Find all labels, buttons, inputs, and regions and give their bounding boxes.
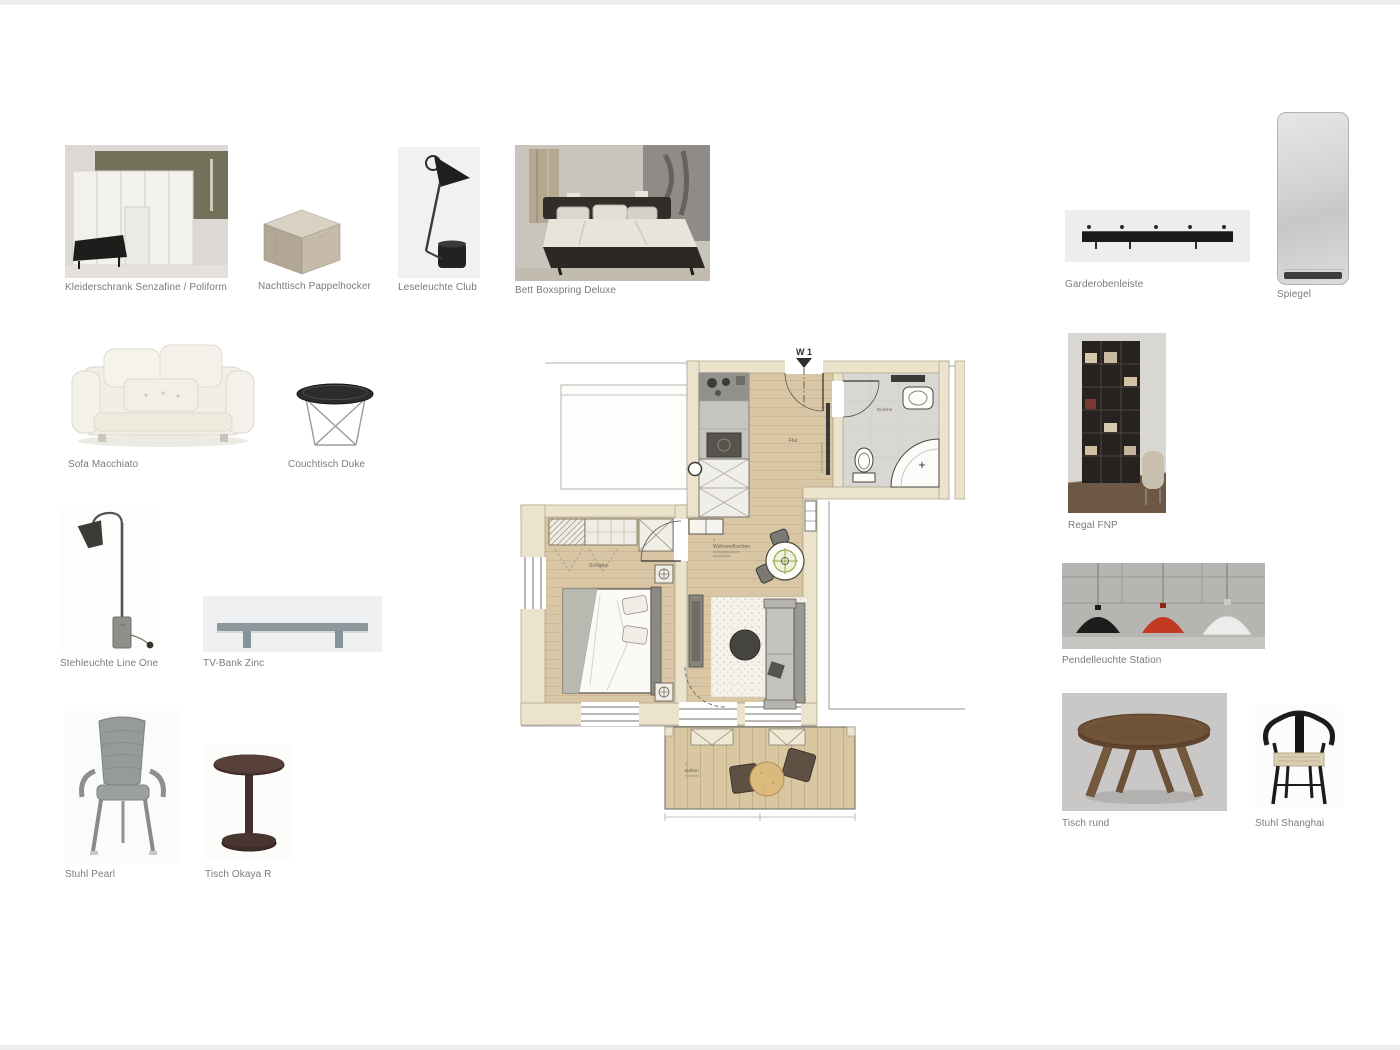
wall-left — [521, 505, 545, 725]
pendelleuchte-caption: Pendelleuchte Station — [1062, 655, 1265, 666]
stehleuchte-image — [60, 505, 160, 652]
balcony-door-opening — [679, 702, 737, 726]
coat-rail-label: Garderobenleiste — [819, 442, 824, 473]
mirror-band — [1283, 269, 1343, 270]
stuhl-shanghai-image — [1255, 705, 1343, 808]
spiegel-image — [1277, 112, 1349, 285]
wall-bedroom-top — [521, 505, 687, 517]
sofa-symbol — [764, 599, 805, 709]
neighbour-outline — [829, 501, 965, 709]
tvbank-leg — [335, 631, 343, 648]
product-sofa: Sofa Macchiato — [68, 337, 258, 470]
rail-knob — [1087, 225, 1091, 229]
window-left — [520, 557, 546, 609]
leseleuchte-caption: Leseleuchte Club — [398, 282, 480, 293]
product-kleiderschrank: Kleiderschrank Senzafine / Poliform — [65, 145, 228, 293]
planter — [769, 729, 805, 745]
column — [689, 463, 702, 476]
product-tvbank: TV-Bank Zinc — [203, 596, 382, 669]
floorplan: W 1 Flur Garderobenleiste — [505, 345, 965, 825]
bath-door-opening — [832, 381, 844, 417]
stuhl-shanghai-caption: Stuhl Shanghai — [1255, 818, 1343, 829]
toilet — [855, 448, 873, 472]
garderobenleiste-image — [1065, 210, 1250, 262]
kleiderschrank-image — [65, 145, 228, 278]
neighbour-terrace — [561, 385, 687, 489]
product-regal: Regal FNP — [1068, 333, 1166, 531]
bath-label: Dusche — [877, 407, 893, 412]
balcony-stub-left — [665, 727, 673, 736]
window-bottom-1 — [581, 702, 639, 726]
kleiderschrank-caption: Kleiderschrank Senzafine / Poliform — [65, 282, 228, 293]
bett-image — [515, 145, 710, 281]
coffee-table-symbol — [730, 630, 760, 660]
moodboard-page: Kleiderschrank Senzafine / Poliform Nach… — [0, 0, 1400, 1050]
rail-knob — [1120, 225, 1124, 229]
rail-hook — [1195, 242, 1197, 249]
nightstand — [655, 565, 673, 583]
living-label: Wohnen/Kochen — [713, 544, 750, 550]
tvbank-leg — [243, 631, 251, 648]
stehleuchte-caption: Stehleuchte Line One — [60, 658, 160, 669]
planter — [691, 729, 733, 745]
balcony-stub-right — [847, 727, 855, 736]
bedroom-door-opening — [674, 519, 688, 561]
regal-image — [1068, 333, 1166, 513]
garderobenleiste-caption: Garderobenleiste — [1065, 279, 1250, 290]
tisch-okaya-caption: Tisch Okaya R — [205, 869, 293, 880]
wall-neighbour-stub — [955, 361, 965, 499]
product-stuhl-shanghai: Stuhl Shanghai — [1255, 705, 1343, 829]
page-edge-top — [0, 0, 1400, 5]
wall-bath-right — [939, 361, 949, 499]
bed-headboard — [651, 587, 661, 695]
rail-knob — [1222, 225, 1226, 229]
product-bett: Bett Boxspring Deluxe — [515, 145, 710, 296]
tvbank-caption: TV-Bank Zinc — [203, 658, 382, 669]
sink — [903, 387, 933, 409]
bedroom-label: Schlafen — [589, 563, 609, 569]
nachttisch-caption: Nachttisch Pappelhocker — [258, 281, 371, 292]
tisch-rund-caption: Tisch rund — [1062, 818, 1227, 829]
rail-bar — [1082, 231, 1233, 242]
product-spiegel: Spiegel — [1277, 112, 1349, 300]
coat-rail-symbol — [826, 403, 830, 475]
product-couchtisch: Couchtisch Duke — [288, 373, 383, 470]
tvbank-image — [203, 596, 382, 652]
wall-bath-bottom — [803, 487, 949, 499]
pendelleuchte-image — [1062, 563, 1265, 649]
sofa-caption: Sofa Macchiato — [68, 459, 258, 470]
radiator — [805, 501, 816, 531]
stuhl-pearl-image — [65, 711, 180, 863]
stuhl-pearl-caption: Stuhl Pearl — [65, 869, 180, 880]
tisch-okaya-image — [205, 745, 293, 860]
tvbank-top — [217, 623, 368, 631]
hall-label: Flur — [789, 438, 798, 444]
bett-caption: Bett Boxspring Deluxe — [515, 285, 710, 296]
balcony-label: Balkon — [685, 768, 699, 773]
couchtisch-image — [288, 373, 383, 450]
bath-shelf — [891, 375, 925, 382]
nachttisch-image — [258, 208, 346, 277]
nightstand — [655, 683, 673, 701]
sofa-image — [68, 337, 258, 450]
product-tisch-okaya: Tisch Okaya R — [205, 745, 293, 880]
leseleuchte-image — [398, 147, 480, 278]
rail-knob — [1154, 225, 1158, 229]
tisch-rund-image — [1062, 693, 1227, 811]
rail-knob — [1188, 225, 1192, 229]
mirror-foot — [1284, 272, 1342, 279]
rail-hook — [1095, 242, 1097, 249]
product-nachttisch: Nachttisch Pappelhocker — [258, 208, 371, 292]
oven — [707, 433, 741, 457]
product-garderobenleiste: Garderobenleiste — [1065, 210, 1250, 290]
product-pendelleuchte: Pendelleuchte Station — [1062, 563, 1265, 666]
unit-label: W 1 — [796, 347, 812, 357]
regal-caption: Regal FNP — [1068, 520, 1166, 531]
product-stehleuchte: Stehleuchte Line One — [60, 505, 160, 669]
rail-hook — [1129, 242, 1131, 249]
balcony-table — [750, 762, 784, 796]
page-edge-bottom — [0, 1045, 1400, 1050]
tvbank-shadow — [217, 631, 368, 633]
product-tisch-rund: Tisch rund — [1062, 693, 1227, 829]
product-stuhl-pearl: Stuhl Pearl — [65, 711, 180, 880]
couchtisch-caption: Couchtisch Duke — [288, 459, 383, 470]
wardrobe-sliding — [549, 519, 585, 545]
wall-kitchen-left — [687, 361, 699, 517]
spiegel-caption: Spiegel — [1277, 289, 1349, 300]
product-leseleuchte: Leseleuchte Club — [398, 147, 480, 293]
